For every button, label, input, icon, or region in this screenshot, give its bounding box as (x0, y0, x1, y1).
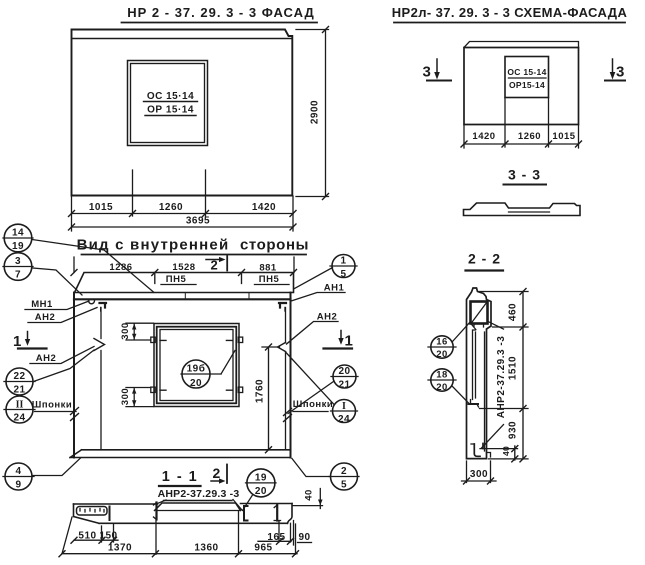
svg-text:20: 20 (338, 366, 350, 377)
svg-text:АН2: АН2 (36, 353, 57, 364)
svg-text:19: 19 (12, 241, 24, 252)
svg-text:460: 460 (508, 303, 519, 321)
svg-text:2 - 2: 2 - 2 (468, 251, 501, 267)
svg-text:21: 21 (338, 380, 350, 391)
svg-text:стороны: стороны (240, 237, 309, 254)
svg-text:22: 22 (13, 371, 25, 382)
svg-text:3: 3 (616, 64, 624, 81)
svg-text:2: 2 (341, 466, 347, 477)
svg-text:20: 20 (255, 486, 267, 497)
svg-text:3: 3 (423, 64, 431, 81)
svg-text:1420: 1420 (252, 202, 276, 213)
svg-text:9: 9 (15, 480, 21, 491)
svg-text:40: 40 (304, 489, 315, 501)
svg-text:АНР2-37.29.3 -3: АНР2-37.29.3 -3 (496, 336, 507, 419)
svg-text:16: 16 (436, 337, 448, 348)
svg-text:90: 90 (298, 532, 310, 543)
svg-text:НР2л- 37. 29. 3 - 3 СХЕМА-ФА: НР2л- 37. 29. 3 - 3 СХЕМА-ФАСАДА (392, 5, 628, 20)
svg-text:24: 24 (13, 413, 25, 424)
svg-text:7: 7 (15, 270, 21, 281)
svg-text:НР 2 - 37. 29. 3 - 3 ФАСАД: НР 2 - 37. 29. 3 - 3 ФАСАД (127, 5, 314, 20)
svg-text:1015: 1015 (89, 202, 113, 213)
svg-text:4: 4 (15, 466, 21, 477)
svg-text:14: 14 (12, 228, 24, 239)
svg-text:МН1: МН1 (31, 299, 53, 310)
svg-text:300: 300 (120, 388, 131, 405)
svg-text:ОС 15·14: ОС 15·14 (147, 91, 194, 102)
svg-text:ОР15-14: ОР15-14 (509, 80, 545, 90)
svg-text:21: 21 (13, 385, 25, 396)
svg-text:1760: 1760 (255, 379, 266, 403)
svg-text:5: 5 (340, 269, 346, 280)
svg-text:18: 18 (436, 370, 448, 381)
svg-text:Шпонки: Шпонки (32, 400, 72, 411)
svg-text:40: 40 (501, 446, 511, 456)
svg-text:1260: 1260 (518, 131, 541, 142)
svg-text:АНР2-37.29.3 -3: АНР2-37.29.3 -3 (158, 488, 240, 500)
svg-text:24: 24 (338, 414, 350, 425)
svg-text:1420: 1420 (472, 131, 495, 142)
svg-text:1: 1 (345, 333, 353, 350)
svg-text:3: 3 (15, 256, 21, 267)
svg-text:II: II (16, 400, 24, 411)
svg-text:1510: 1510 (508, 356, 519, 380)
svg-text:300: 300 (120, 322, 131, 339)
svg-text:20: 20 (436, 382, 448, 393)
svg-text:20: 20 (190, 378, 202, 389)
svg-text:5: 5 (341, 480, 347, 491)
svg-text:19б: 19б (187, 363, 206, 375)
svg-text:ОС 15-14: ОС 15-14 (507, 67, 546, 77)
svg-text:19: 19 (255, 472, 267, 483)
svg-text:1: 1 (340, 256, 346, 267)
svg-text:930: 930 (508, 421, 519, 439)
svg-text:1528: 1528 (172, 262, 195, 273)
svg-text:1 - 1: 1 - 1 (162, 469, 199, 485)
svg-text:1015: 1015 (552, 131, 575, 142)
svg-text:I: I (342, 401, 346, 412)
svg-text:1260: 1260 (159, 202, 183, 213)
svg-text:ПН5: ПН5 (166, 274, 187, 285)
svg-text:965: 965 (254, 543, 272, 554)
svg-text:3 - 3: 3 - 3 (508, 167, 541, 183)
svg-text:Вид с внутренней: Вид с внутренней (77, 237, 230, 254)
svg-text:1360: 1360 (194, 543, 218, 554)
svg-text:ПН5: ПН5 (259, 274, 280, 285)
svg-text:3695: 3695 (186, 216, 210, 227)
svg-text:300: 300 (470, 469, 488, 480)
svg-text:2900: 2900 (310, 100, 321, 124)
svg-text:АН2: АН2 (35, 312, 56, 323)
svg-text:ОР 15·14: ОР 15·14 (147, 105, 194, 116)
svg-text:Шпонки: Шпонки (293, 399, 333, 410)
svg-text:20: 20 (436, 349, 448, 360)
svg-text:1370: 1370 (108, 543, 132, 554)
